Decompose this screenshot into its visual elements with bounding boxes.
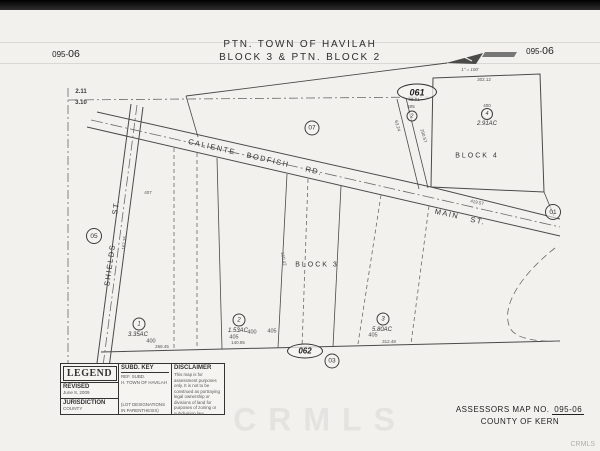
dimension-label: 268.45 <box>155 345 169 350</box>
legend-subd-key-column: SUBD. KEY REF. SUBD. H. TOWN OF HAVILAH … <box>119 364 172 414</box>
disclaimer-title: DISCLAIMER <box>174 365 222 371</box>
page-ref-ellipse-062: 062 <box>287 344 323 359</box>
parcel-circle-3: 3 <box>377 313 390 326</box>
ref-circle-07: 07 <box>305 121 320 136</box>
watermark-small: CRMLS <box>570 441 595 448</box>
map-title-line2: BLOCK 3 & PTN. BLOCK 2 <box>219 53 381 63</box>
legend-disclaimer-column: DISCLAIMER This map is for assessment pu… <box>172 364 224 414</box>
scanned-assessor-map-page: { "header": { "sheet_left_prefix": "095-… <box>0 0 600 451</box>
lot-number: 400 <box>247 330 256 336</box>
dimension-label: 140.85 <box>231 341 245 346</box>
block4-parcel-outline <box>431 74 544 192</box>
section-number-top: 2.11 <box>75 89 86 95</box>
county-label: COUNTY OF KERN <box>430 417 600 426</box>
divider-solid-a <box>217 158 222 349</box>
caliente-bodfish-rd-upper-line <box>97 112 560 219</box>
dimension-label: 62.01 <box>408 98 419 103</box>
shields-centerline-dashes <box>100 105 137 389</box>
street-label-shields-st: ST. <box>111 199 121 215</box>
lot-number: 405 <box>267 329 276 335</box>
assessors-map-number: 095-06 <box>552 405 584 415</box>
ref-circle-05: 05 <box>86 228 102 244</box>
dimension-label: 312.48 <box>382 340 396 345</box>
scale-label: 1" = 100' <box>461 68 479 73</box>
legend-title: LEGEND <box>63 366 117 381</box>
lot-number: 405 <box>407 105 415 110</box>
ref-circle-01: 01 <box>545 204 561 220</box>
east-boundary-curve <box>508 248 559 341</box>
parcel-4-acreage: 2.91AC <box>477 121 497 127</box>
block-4-label: BLOCK 4 <box>455 153 499 160</box>
subd-key-row: H. TOWN OF HAVILAH <box>121 380 169 386</box>
parcel-2-acreage: 1.53AC <box>228 328 248 334</box>
legend-left-column: LEGEND REVISED June 8, 2009 JURISDICTION… <box>61 364 119 414</box>
block3-bottom-boundary <box>101 341 560 352</box>
disclaimer-text: This map is for assessment purposes only… <box>174 372 222 416</box>
section-number-bottom: 3.10 <box>75 100 87 106</box>
dimension-label: 302.12 <box>477 78 491 83</box>
revised-date: June 8, 2009 <box>63 390 116 395</box>
ref-circle-03: 03 <box>325 354 340 369</box>
road-centerline-dashes <box>91 120 560 227</box>
legend-box: LEGEND REVISED June 8, 2009 JURISDICTION… <box>60 363 225 415</box>
block2-corner-line <box>186 96 198 137</box>
assessors-map-label: ASSESSORS MAP NO. <box>456 405 550 414</box>
subd-note: (LOT DESIGNATIONS IN PARENTHESIS) <box>121 402 169 413</box>
parcel-circle-2b: 2 <box>407 111 418 122</box>
divider-dashed-d <box>411 206 429 344</box>
lot-number: 400 <box>483 104 491 109</box>
legend-jurisdiction-row: JURISDICTION COUNTY <box>61 398 118 414</box>
parcel-circle-1: 1 <box>133 318 146 331</box>
legend-revised-row: REVISED June 8, 2009 <box>61 382 118 398</box>
watermark-large: CRMLS <box>233 402 407 439</box>
dimension-label: 407 <box>144 191 152 196</box>
subd-key-title: SUBD. KEY <box>121 365 169 373</box>
parcel-circle-4: 4 <box>481 108 493 120</box>
block-3-label: BLOCK 3 <box>295 262 339 269</box>
lot-number: 405 <box>368 333 377 339</box>
sheet-number-left: 095-06 <box>52 49 80 60</box>
caliente-bodfish-rd-lower-line <box>87 127 560 236</box>
sheet-number-right: 095-06 <box>526 46 554 57</box>
jurisdiction-value: COUNTY <box>63 406 116 411</box>
section-line-dashes <box>68 97 429 100</box>
assessors-map-line: ASSESSORS MAP NO. 095-06 <box>430 405 600 414</box>
north-arrow-icon <box>446 52 517 64</box>
map-title-line1: PTN. TOWN OF HAVILAH <box>223 40 376 50</box>
parcel-1-acreage: 3.35AC <box>128 332 148 338</box>
parcel-circle-2: 2 <box>233 314 246 327</box>
